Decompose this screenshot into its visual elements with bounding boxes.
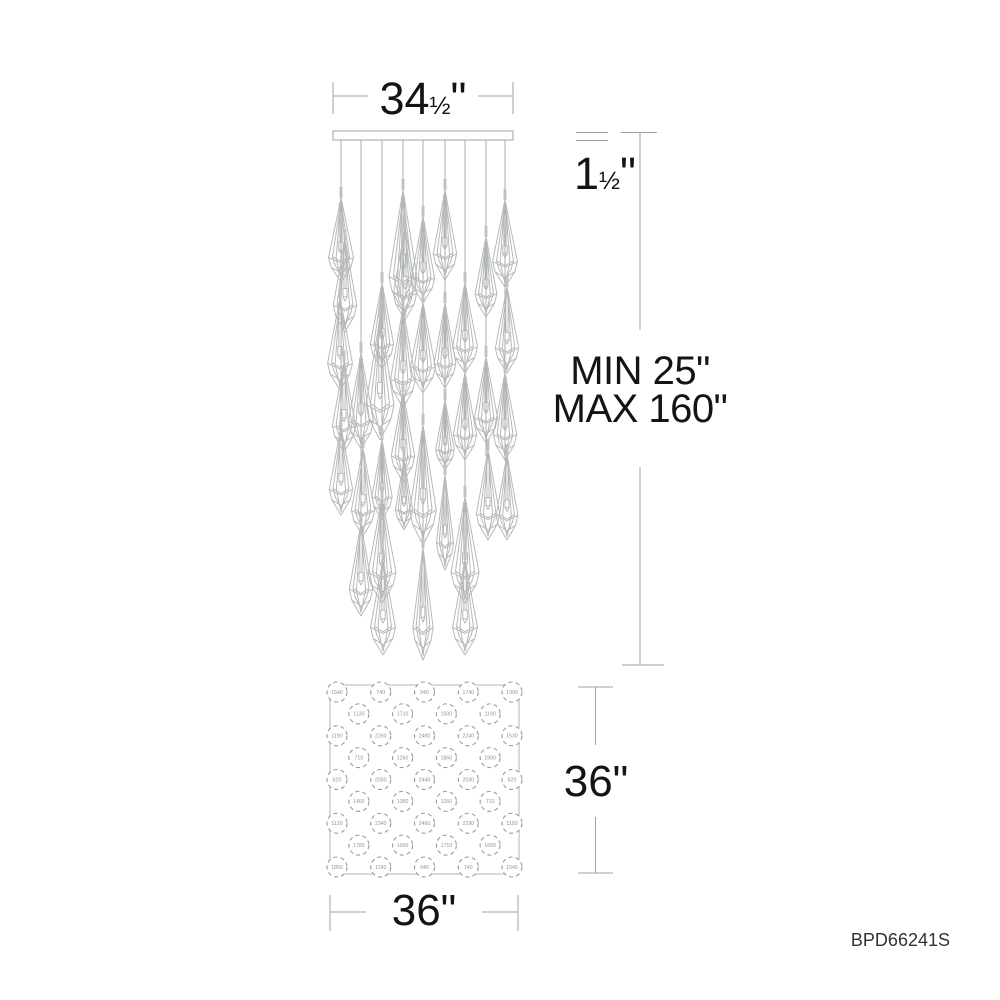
plan-pendant-drop-label: 2260 bbox=[375, 734, 387, 740]
dim-fraction: ½ bbox=[430, 92, 451, 120]
plan-pendant-drop-label: 1850 bbox=[331, 865, 343, 871]
canopy-bar bbox=[333, 131, 513, 140]
fixture-diagram: 1540740940174013001130171015001190119022… bbox=[0, 0, 1000, 1000]
plan-pendant-drop-label: 1360 bbox=[397, 799, 409, 805]
pendant-stem bbox=[340, 416, 343, 427]
pendant-stem bbox=[464, 272, 467, 283]
plan-pendant-drop-label: 1460 bbox=[353, 799, 365, 805]
dim-value: 1 bbox=[574, 148, 599, 199]
plan-pendant-drop-label: 1300 bbox=[506, 690, 518, 696]
dim-label-drop-range: MIN 25" MAX 160" bbox=[520, 352, 760, 428]
pendant-stem bbox=[487, 439, 490, 450]
plan-pendant-drop-label: 1740 bbox=[462, 690, 474, 696]
plan-pendant-drop-label: 710 bbox=[486, 799, 495, 805]
plan-pendant-drop-label: 940 bbox=[420, 865, 429, 871]
pendant-stem bbox=[504, 189, 507, 200]
plan-pendant-drop-label: 1130 bbox=[331, 821, 342, 827]
plan-pendant-drop-label: 2240 bbox=[462, 734, 474, 740]
pendant-stem bbox=[485, 226, 488, 237]
plan-pendant-drop-label: 620 bbox=[333, 777, 342, 783]
plan-pendant-drop-label: 1190 bbox=[331, 734, 342, 740]
spec-sheet: 1540740940174013001130171015001190119022… bbox=[0, 0, 1000, 1000]
pendant-stem bbox=[444, 464, 447, 475]
pendant-stem bbox=[402, 179, 405, 190]
pendant-cables-group bbox=[341, 140, 505, 566]
pendant-stem bbox=[402, 297, 405, 308]
plan-view-group: 1540740940174013001130171015001190119022… bbox=[327, 682, 522, 877]
plan-pendant-drop-label: 1260 bbox=[441, 799, 453, 805]
pendant-stem bbox=[343, 351, 346, 362]
dim-label-plan-width: 36" bbox=[384, 886, 464, 936]
plan-pendant-drop-label: 1130 bbox=[353, 712, 364, 718]
pendant-stem bbox=[464, 549, 467, 560]
crystal-pendant bbox=[436, 475, 453, 570]
dimension-lines-canopy-height bbox=[576, 133, 608, 141]
crystal-pendant bbox=[496, 455, 518, 540]
pendant-stem bbox=[402, 381, 405, 392]
pendant-stem bbox=[444, 389, 447, 400]
crystal-pendant bbox=[413, 548, 433, 660]
pendant-stem bbox=[344, 229, 347, 240]
pendant-stem bbox=[379, 307, 382, 318]
pendant-stem bbox=[403, 449, 406, 460]
plan-pendant-drop-label: 740 bbox=[376, 690, 385, 696]
dim-drop-max: MAX 160" bbox=[520, 390, 760, 428]
crystal-pendant bbox=[393, 228, 416, 320]
plan-pendant-drop-label: 1260 bbox=[397, 755, 409, 761]
plan-pendant-drop-label: 2290 bbox=[462, 821, 474, 827]
product-code: BPD66241S bbox=[800, 930, 950, 951]
pendant-stem bbox=[381, 272, 384, 283]
plan-pendant-drop-label: 1780 bbox=[353, 843, 365, 849]
dim-unit: " bbox=[451, 73, 467, 124]
plan-pendant-drop-label: 1500 bbox=[441, 712, 453, 718]
pendant-stem bbox=[340, 187, 343, 198]
pendant-stem bbox=[404, 217, 407, 228]
pendant-stem bbox=[360, 513, 363, 524]
plan-pendant-drop-label: 1190 bbox=[485, 712, 496, 718]
plan-pendant-drop-label: 2460 bbox=[419, 734, 431, 740]
plan-pendant-drop-label: 2340 bbox=[375, 821, 387, 827]
plan-pendant-drop-label: 2030 bbox=[462, 777, 474, 783]
pendant-stem bbox=[464, 362, 467, 373]
pendant-stem bbox=[422, 292, 425, 303]
pendant-stem bbox=[506, 276, 509, 287]
dim-fraction: ½ bbox=[599, 167, 620, 195]
crystal-pendant bbox=[349, 524, 372, 616]
pendant-stem bbox=[485, 346, 488, 357]
plan-pendant-drop-label: 1190 bbox=[375, 865, 386, 871]
pendant-stem bbox=[422, 414, 425, 425]
plan-pendant-drop-label: 620 bbox=[508, 777, 517, 783]
pendant-stem bbox=[444, 292, 447, 303]
pendant-stem bbox=[504, 362, 507, 373]
plan-pendant-drop-label: 1190 bbox=[506, 821, 517, 827]
pendant-stem bbox=[464, 486, 467, 497]
plan-pendant-drop-label: 2460 bbox=[419, 821, 431, 827]
canopy-group bbox=[333, 131, 513, 140]
pendant-stem bbox=[422, 537, 425, 548]
pendant-stem bbox=[362, 437, 365, 448]
plan-pendant-drop-label: 710 bbox=[355, 755, 364, 761]
dim-unit: " bbox=[620, 148, 636, 199]
plan-pendant-drop-label: 1540 bbox=[506, 865, 518, 871]
plan-pendant-drop-label: 1540 bbox=[331, 690, 343, 696]
plan-pendant-drop-label: 1000 bbox=[397, 843, 409, 849]
pendant-stem bbox=[381, 487, 384, 498]
plan-pendant-drop-label: 1650 bbox=[484, 843, 496, 849]
crystal-pendant bbox=[495, 287, 518, 373]
crystal-pendant bbox=[476, 450, 499, 540]
plan-pendant-drop-label: 740 bbox=[464, 865, 473, 871]
dim-value: 34 bbox=[379, 73, 429, 124]
dim-label-canopy-height: 1½" bbox=[560, 148, 650, 200]
plan-pendant-drop-label: 2440 bbox=[419, 777, 431, 783]
dim-label-plan-height: 36" bbox=[556, 757, 636, 807]
dim-drop-min: MIN 25" bbox=[520, 352, 760, 390]
plan-pendant-drop-label: 1710 bbox=[397, 712, 409, 718]
pendant-stem bbox=[444, 179, 447, 190]
pendant-stem bbox=[381, 429, 384, 440]
dim-label-canopy-width: 34½" bbox=[323, 73, 523, 125]
plan-pendant-drop-label: 2050 bbox=[375, 777, 387, 783]
pendant-stem bbox=[506, 444, 509, 455]
plan-pendant-drop-label: 940 bbox=[420, 690, 429, 696]
crystal-pendant bbox=[351, 448, 374, 536]
pendant-stem bbox=[422, 206, 425, 217]
plan-pendant-drop-label: 1900 bbox=[484, 755, 496, 761]
plan-pendant-drop-label: 1530 bbox=[506, 734, 518, 740]
plan-pendant-drop-label: 1860 bbox=[441, 755, 453, 761]
pendant-stem bbox=[360, 342, 363, 353]
pendant-stem bbox=[339, 287, 342, 298]
pendant-stem bbox=[382, 549, 385, 560]
plan-pendant-drop-label: 1710 bbox=[441, 843, 453, 849]
